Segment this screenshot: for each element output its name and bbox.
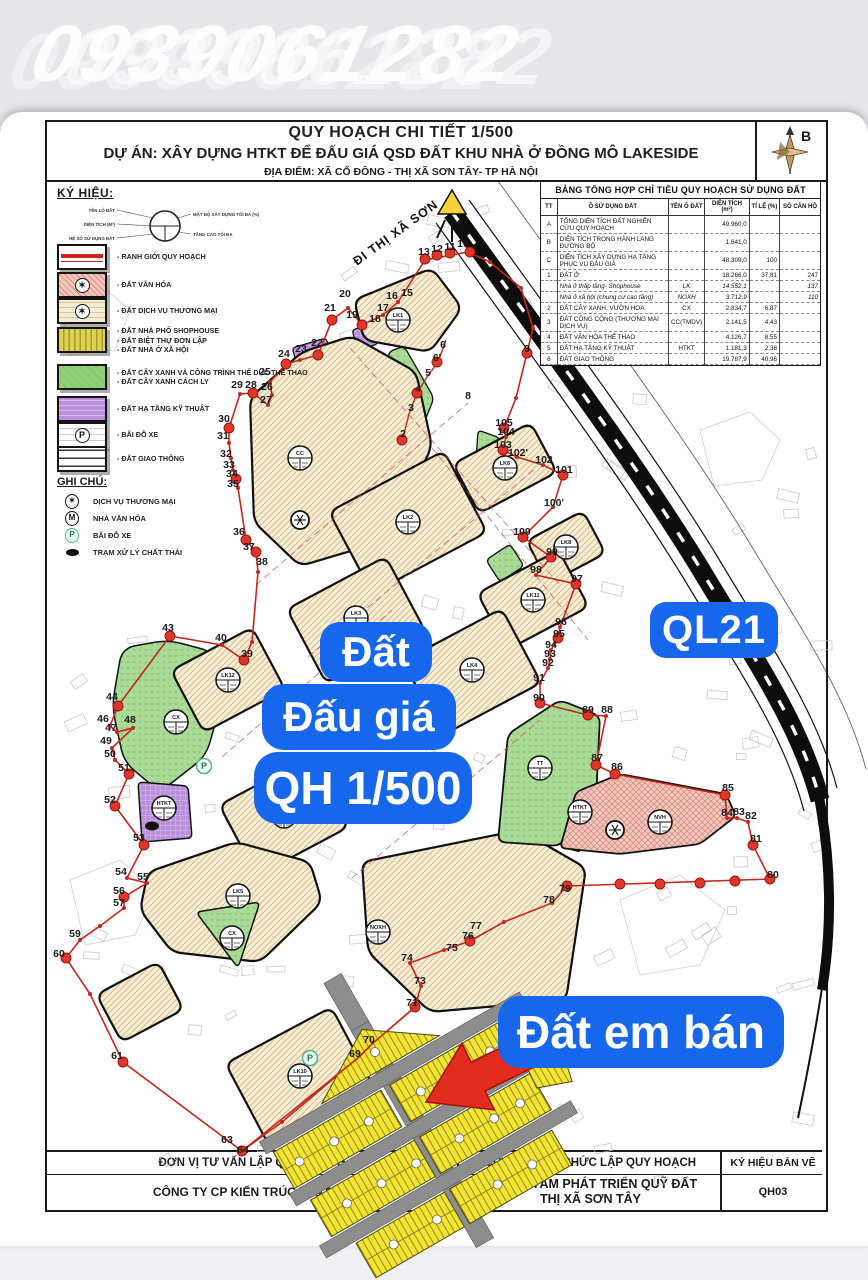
table-row: 5ĐẤT HẠ TẦNG KỸ THUẬTHTKT1.181,32,38 (541, 343, 820, 354)
note-item: TRẠM XỬ LÝ CHẤT THẢI (65, 545, 182, 559)
note-label: BÃI ĐỖ XE (93, 531, 131, 540)
cell-so: 110 (780, 292, 820, 303)
traffic-swatch-icon (57, 446, 107, 472)
cell-so: 247 (780, 270, 820, 281)
table-row: Nhà ở thấp tầng- ShophouseLK14.552,1137 (541, 281, 820, 292)
cell-dt: 1.641,0 (705, 234, 749, 252)
table-row: 6ĐẤT GIAO THÔNG19.787,940,96 (541, 354, 820, 365)
legend-panel: KÝ HIỆU: TÊN LÔ ĐẤTDIỆN TÍCH (M²)HỆ SỐ S… (57, 186, 313, 200)
note-item: MNHÀ VĂN HÓA (65, 511, 146, 525)
cell-tt (541, 292, 557, 303)
label-qh-1-500: QH 1/500 (254, 752, 472, 824)
cell-dt: 1.181,3 (705, 343, 749, 354)
cell-dt: 2.141,5 (705, 314, 749, 332)
cell-name: ĐẤT HẠ TẦNG KỸ THUẬT (557, 343, 668, 354)
planning-map-page: 0939061282 ĐI THỊ XÃ SƠNLK1CCLK2LK3LK4LK… (0, 0, 868, 1280)
cell-ten: NOXH (668, 292, 704, 303)
cell-tl (749, 281, 779, 292)
cell-ten: HTKT (668, 343, 704, 354)
footer-block: ĐƠN VỊ TƯ VẤN LẬP QUY HOẠCH CÔNG TY CP K… (47, 1150, 822, 1210)
column-header: TỈ LỆ (%) (749, 199, 779, 216)
swatch-symbol-icon: ✶ (75, 278, 90, 293)
table-row: Nhà ở xã hội (chung cư cao tầng)NOXH3.71… (541, 292, 820, 303)
cell-tl (749, 292, 779, 303)
lot-circle-diagram: TÊN LÔ ĐẤTDIỆN TÍCH (M²)HỆ SỐ SỬ DỤNG ĐẤ… (57, 202, 287, 250)
label-dau-gia: Đấu giá (262, 684, 456, 750)
legend-item: P- BÃI ĐỖ XE (57, 422, 158, 448)
infra-swatch-icon (57, 396, 107, 422)
green-swatch-icon (57, 364, 107, 390)
cell-ten: LK (668, 281, 704, 292)
svg-text:MẬT ĐỘ XÂY DỰNG TỐI ĐA (%): MẬT ĐỘ XÂY DỰNG TỐI ĐA (%) (193, 212, 260, 217)
cell-name: DIỆN TÍCH TRONG HÀNH LANG ĐƯỜNG BỘ (557, 234, 668, 252)
legend-item-label: - BÃI ĐỖ XE (117, 430, 158, 440)
page-title: QUY HOẠCH CHI TIẾT 1/500 (47, 124, 755, 142)
landuse-summary-table: BẢNG TỔNG HỢP CHỈ TIÊU QUY HOẠCH SỬ DỤNG… (540, 181, 821, 366)
commerce-swatch-icon: ✶ (57, 298, 107, 324)
footer-authority-line2: THỊ XÃ SƠN TÂY (540, 1192, 641, 1207)
column-header: TÊN Ô ĐẤT (668, 199, 704, 216)
table-row: CDIỆN TÍCH XÂY DỰNG HẠ TẦNG PHỤC VỤ ĐẤU … (541, 252, 820, 270)
svg-text:TÊN LÔ ĐẤT: TÊN LÔ ĐẤT (89, 208, 116, 213)
cell-so (780, 252, 820, 270)
cell-dt: 48.309,0 (705, 252, 749, 270)
cell-tl: 40,96 (749, 354, 779, 365)
note-label: NHÀ VĂN HÓA (93, 514, 146, 523)
table-row: 2ĐẤT CÂY XANH, VƯỜN HOACX2.834,76,87 (541, 303, 820, 314)
legend-item-label: - ĐẤT CÂY XANH VÀ CÔNG TRÌNH THỂ DỤC THỂ… (117, 368, 308, 387)
table-title: BẢNG TỔNG HỢP CHỈ TIÊU QUY HOẠCH SỬ DỤNG… (541, 182, 820, 199)
cell-tt: 6 (541, 354, 557, 365)
cell-tt: 1 (541, 270, 557, 281)
cell-tt (541, 281, 557, 292)
housing-swatch-icon (57, 327, 107, 353)
column-header: TT (541, 199, 557, 216)
cell-name: ĐẤT GIAO THÔNG (557, 354, 668, 365)
parking-swatch-icon: P (57, 422, 107, 448)
legend-item-label: - ĐẤT NHÀ PHỐ SHOPHOUSE- ĐẤT BIỆT THỰ ĐƠ… (117, 326, 219, 355)
footer-consultant-name: CÔNG TY CP KIẾN TRÚC VT&T HÀ (47, 1174, 457, 1210)
svg-text:HỆ SỐ SỬ DỤNG ĐẤT: HỆ SỐ SỬ DỤNG ĐẤT (69, 236, 115, 241)
cell-tt: A (541, 216, 557, 234)
title-block: QUY HOẠCH CHI TIẾT 1/500 DỰ ÁN: XÂY DỰNG… (47, 122, 826, 182)
cell-name: ĐẤT Ở (557, 270, 668, 281)
legend-item: - RANH GIỚI QUY HOẠCH (57, 244, 206, 270)
p-icon: P (65, 528, 79, 542)
cell-ten (668, 216, 704, 234)
cell-dt: 4.126,7 (705, 332, 749, 343)
page-bottom-margin (0, 1246, 868, 1280)
footer-authority-line1: TRUNG TÂM PHÁT TRIỂN QUỸ ĐẤT (484, 1177, 697, 1192)
tm-icon: ✶ (65, 494, 79, 508)
cell-dt: 18.266,0 (705, 270, 749, 281)
cell-name: Nhà ở xã hội (chung cư cao tầng) (557, 292, 668, 303)
cell-dt: 19.787,9 (705, 354, 749, 365)
legend-heading: KÝ HIỆU: (57, 186, 313, 200)
legend-item-label: - ĐẤT GIAO THÔNG (117, 454, 184, 464)
cell-tl: 8,55 (749, 332, 779, 343)
footer-sheet-id-header: KÝ HIỆU BẢN VẼ (720, 1152, 824, 1174)
cell-tl: 4,43 (749, 314, 779, 332)
cell-ten (668, 354, 704, 365)
label-dat: Đất (320, 622, 432, 682)
notes-heading: GHI CHÚ: (57, 476, 107, 488)
footer-consultant-header: ĐƠN VỊ TƯ VẤN LẬP QUY HOẠCH (47, 1152, 457, 1174)
cell-name: ĐẤT CÔNG CỘNG (THƯƠNG MẠI DỊCH VỤ) (557, 314, 668, 332)
boundary-swatch-icon (57, 244, 107, 270)
note-item: PBÃI ĐỖ XE (65, 528, 131, 542)
phone-watermark: 0939061282 (23, 8, 531, 100)
swatch-symbol-icon: P (75, 428, 90, 443)
cell-so (780, 303, 820, 314)
culture-swatch-icon: ✶ (57, 272, 107, 298)
cell-tl (749, 216, 779, 234)
note-item: ✶DỊCH VỤ THƯƠNG MẠI (65, 494, 176, 508)
cell-name: ĐẤT VĂN HÓA THỂ THAO (557, 332, 668, 343)
cell-ten: CC(TMDV) (668, 314, 704, 332)
note-label: DỊCH VỤ THƯƠNG MẠI (93, 497, 176, 506)
cell-dt: 49.960,0 (705, 216, 749, 234)
table-row: BDIỆN TÍCH TRONG HÀNH LANG ĐƯỜNG BỘ1.641… (541, 234, 820, 252)
cell-tt: 3 (541, 314, 557, 332)
cell-ten (668, 270, 704, 281)
footer-authority-name: TRUNG TÂM PHÁT TRIỂN QUỸ ĐẤT THỊ XÃ SƠN … (457, 1174, 722, 1210)
column-header: SỐ CĂN HỘ (780, 199, 820, 216)
footer-authority-header: CƠ QUAN TỔ CHỨC LẬP QUY HOẠCH (457, 1152, 722, 1174)
legend-item: ✶- ĐẤT VĂN HÓA (57, 272, 171, 298)
table-row: 3ĐẤT CÔNG CỘNG (THƯƠNG MẠI DỊCH VỤ)CC(TM… (541, 314, 820, 332)
project-location: ĐỊA ĐIỂM: XÃ CỔ ĐÔNG - THỊ XÃ SƠN TÂY- T… (47, 166, 755, 178)
cell-so: 137 (780, 281, 820, 292)
m-icon: M (65, 511, 79, 525)
cell-dt: 2.834,7 (705, 303, 749, 314)
cell-so (780, 216, 820, 234)
north-arrow-icon: B (757, 122, 826, 180)
label-dat-em-ban: Đất em bán (498, 996, 784, 1068)
cell-dt: 3.712,9 (705, 292, 749, 303)
cell-so (780, 343, 820, 354)
cell-ten (668, 252, 704, 270)
cell-tt: 2 (541, 303, 557, 314)
cell-name: Nhà ở thấp tầng- Shophouse (557, 281, 668, 292)
cell-tl (749, 234, 779, 252)
legend-item: - ĐẤT GIAO THÔNG (57, 446, 184, 472)
cell-tl: 6,87 (749, 303, 779, 314)
cell-name: ĐẤT CÂY XANH, VƯỜN HOA (557, 303, 668, 314)
table-row: 1ĐẤT Ở18.266,037,81247 (541, 270, 820, 281)
cell-tl: 2,38 (749, 343, 779, 354)
cell-tt: B (541, 234, 557, 252)
cell-tl: 37,81 (749, 270, 779, 281)
cell-so (780, 314, 820, 332)
legend-item: ✶- ĐẤT DỊCH VỤ THƯƠNG MẠI (57, 298, 217, 324)
cell-so (780, 234, 820, 252)
cell-tt: 4 (541, 332, 557, 343)
swatch-symbol-icon: ✶ (75, 304, 90, 319)
table-row: 4ĐẤT VĂN HÓA THỂ THAO4.126,78,55 (541, 332, 820, 343)
cell-ten (668, 234, 704, 252)
svg-text:B: B (801, 128, 811, 144)
footer-sheet-id: QH03 (720, 1174, 824, 1210)
compass-box: B (755, 122, 826, 180)
svg-text:TẦNG CAO TỐI ĐA: TẦNG CAO TỐI ĐA (193, 232, 233, 237)
cell-name: TỔNG DIỆN TÍCH ĐẤT NGHIÊN CỨU QUY HOẠCH (557, 216, 668, 234)
column-header: Ô SỬ DỤNG ĐẤT (557, 199, 668, 216)
project-title: DỰ ÁN: XÂY DỰNG HTKT ĐỂ ĐẤU GIÁ QSD ĐẤT … (47, 145, 755, 162)
label-ql21: QL21 (650, 602, 778, 658)
legend-item-label: - ĐẤT DỊCH VỤ THƯƠNG MẠI (117, 306, 217, 316)
waste-icon (65, 545, 79, 559)
cell-so (780, 332, 820, 343)
legend-item-label: - ĐẤT HẠ TẦNG KỸ THUẬT (117, 404, 209, 414)
legend-item: - ĐẤT NHÀ PHỐ SHOPHOUSE- ĐẤT BIỆT THỰ ĐƠ… (57, 326, 219, 355)
table-header-row: TTÔ SỬ DỤNG ĐẤTTÊN Ô ĐẤTDIỆN TÍCH (m²)TỈ… (541, 199, 820, 216)
legend-item-label: - RANH GIỚI QUY HOẠCH (117, 252, 206, 262)
cell-ten (668, 332, 704, 343)
cell-tt: C (541, 252, 557, 270)
svg-text:DIỆN TÍCH (M²): DIỆN TÍCH (M²) (84, 222, 116, 227)
legend-item-label: - ĐẤT VĂN HÓA (117, 280, 171, 290)
column-header: DIỆN TÍCH (m²) (705, 199, 749, 216)
legend-item: - ĐẤT HẠ TẦNG KỸ THUẬT (57, 396, 209, 422)
cell-dt: 14.552,1 (705, 281, 749, 292)
cell-name: DIỆN TÍCH XÂY DỰNG HẠ TẦNG PHỤC VỤ ĐẤU G… (557, 252, 668, 270)
cell-tt: 5 (541, 343, 557, 354)
note-label: TRẠM XỬ LÝ CHẤT THẢI (93, 548, 182, 557)
legend-item: - ĐẤT CÂY XANH VÀ CÔNG TRÌNH THỂ DỤC THỂ… (57, 364, 308, 390)
cell-ten: CX (668, 303, 704, 314)
cell-tl: 100 (749, 252, 779, 270)
cell-so (780, 354, 820, 365)
table-row: ATỔNG DIỆN TÍCH ĐẤT NGHIÊN CỨU QUY HOẠCH… (541, 216, 820, 234)
